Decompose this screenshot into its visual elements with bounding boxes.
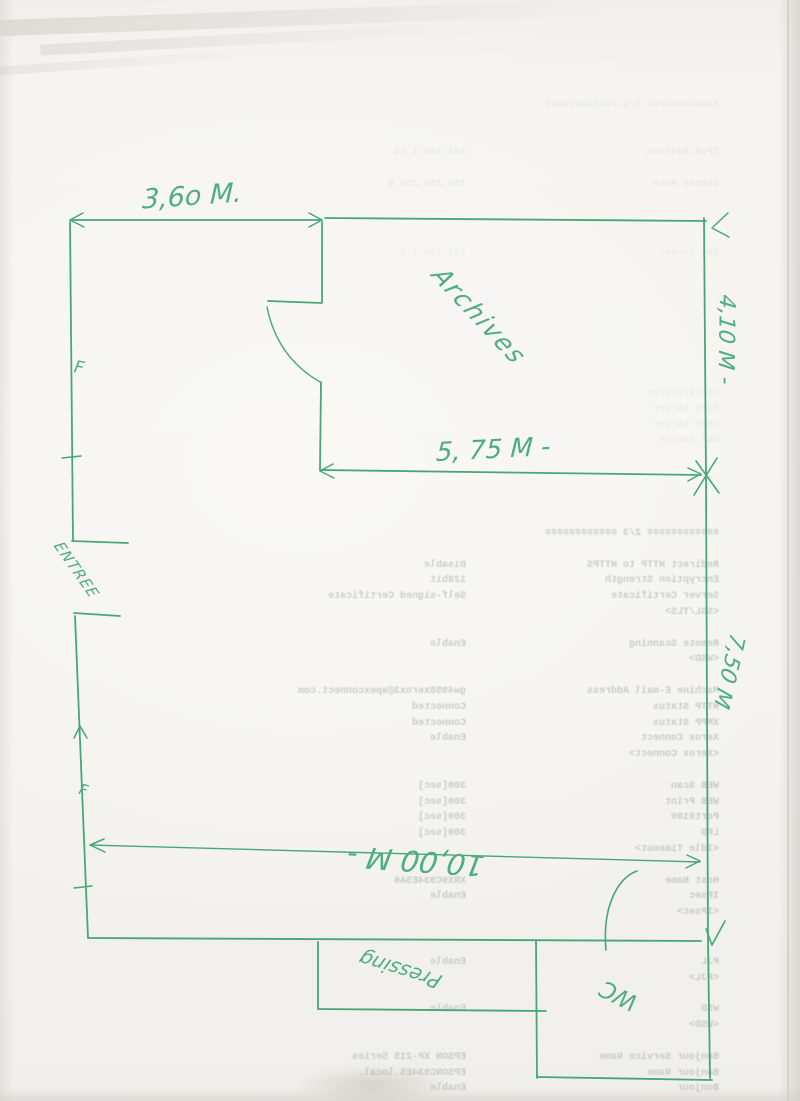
pressing-wall-bottom xyxy=(318,1009,546,1011)
dimension-label-archives-width: 5, 75 M - xyxy=(435,434,551,466)
wc-wall-left xyxy=(536,941,537,1078)
wall-bottom xyxy=(88,938,701,941)
dimension-label-archives-height: 4,10 M - xyxy=(713,293,737,386)
dimension-label-top-width: 3,6o M. xyxy=(142,179,243,213)
wc-wall-bottom xyxy=(537,1077,712,1080)
door-swing-arc xyxy=(267,307,320,382)
entry-stub-bottom xyxy=(74,613,120,616)
wall-left-lower xyxy=(75,616,88,938)
archives-wall-left-lower xyxy=(320,382,321,470)
wall-tick xyxy=(74,886,92,888)
dim-line-575 xyxy=(320,470,701,475)
scanned-floor-plan-page: ############ 1/3 ############IPv4 Addres… xyxy=(0,0,800,1101)
wall-tick xyxy=(62,456,81,458)
wall-left-upper xyxy=(70,222,73,540)
archives-door-stub xyxy=(268,301,322,303)
wall-top xyxy=(325,218,706,221)
wall-right xyxy=(704,218,710,1078)
corner-tick-top-right xyxy=(712,213,729,237)
floor-plan-drawing xyxy=(0,0,800,1101)
wc-door-curve xyxy=(605,871,637,950)
entry-stub-top xyxy=(72,541,128,543)
